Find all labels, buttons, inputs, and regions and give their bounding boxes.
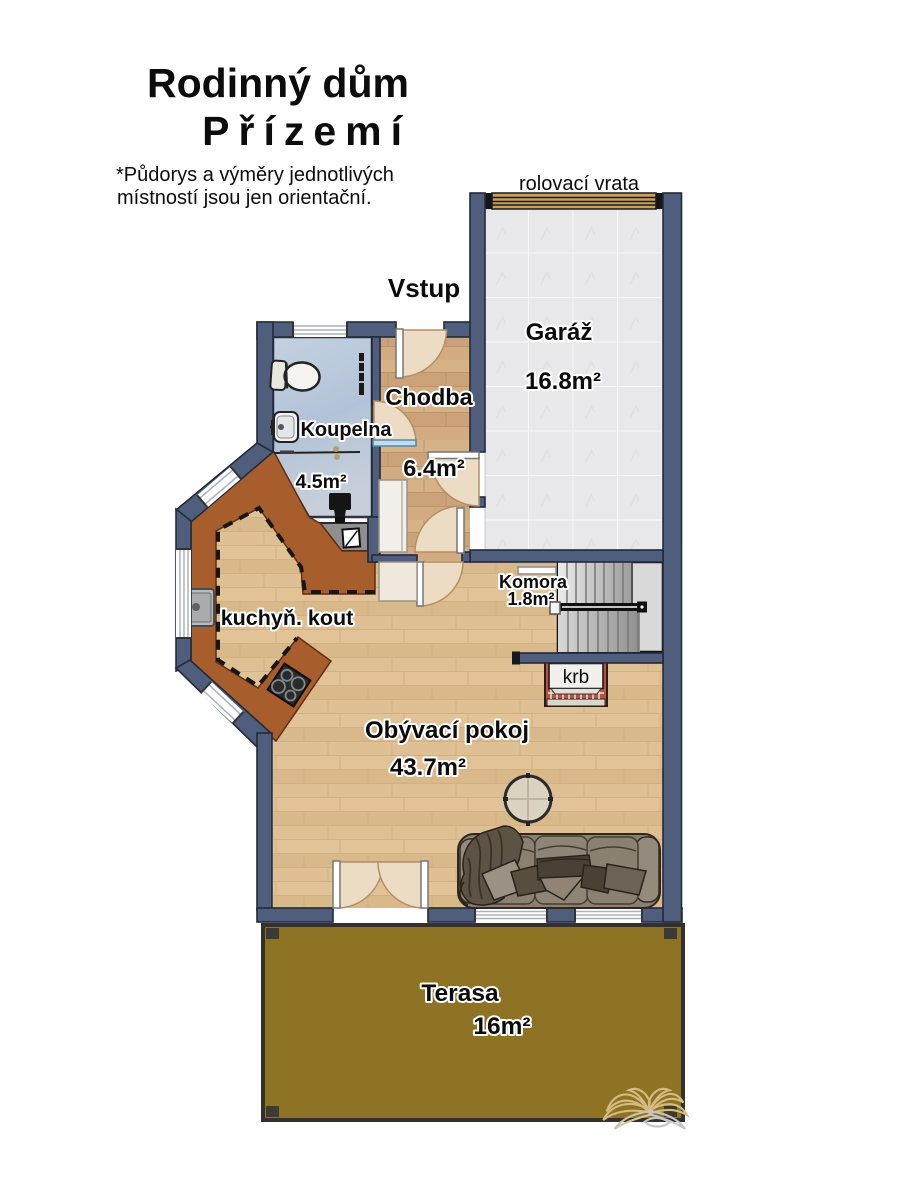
svg-text:43.7m²: 43.7m² (390, 754, 466, 781)
svg-text:Vstup: Vstup (388, 273, 460, 303)
svg-text:místností jsou jen orientační.: místností jsou jen orientační. (117, 187, 372, 209)
svg-text:4.5m²: 4.5m² (296, 471, 347, 493)
svg-text:kuchyň. kout: kuchyň. kout (221, 606, 354, 630)
svg-text:6.4m²: 6.4m² (403, 455, 465, 481)
svg-text:Obývací pokoj: Obývací pokoj (365, 717, 529, 744)
svg-text:Přízemí: Přízemí (202, 108, 411, 154)
svg-text:16m²: 16m² (473, 1013, 530, 1040)
svg-text:*Půdorys a výměry jednotlivých: *Půdorys a výměry jednotlivých (116, 164, 394, 186)
svg-text:krb: krb (563, 667, 589, 688)
svg-text:rolovací vrata: rolovací vrata (519, 173, 640, 195)
svg-text:Terasa: Terasa (421, 980, 499, 1007)
svg-text:Koupelna: Koupelna (300, 419, 392, 441)
svg-text:Chodba: Chodba (385, 384, 473, 410)
svg-text:16.8m²: 16.8m² (525, 368, 601, 395)
svg-text:Garáž: Garáž (526, 319, 593, 346)
svg-text:1.8m²: 1.8m² (507, 589, 554, 609)
svg-text:Rodinný dům: Rodinný dům (147, 60, 409, 106)
